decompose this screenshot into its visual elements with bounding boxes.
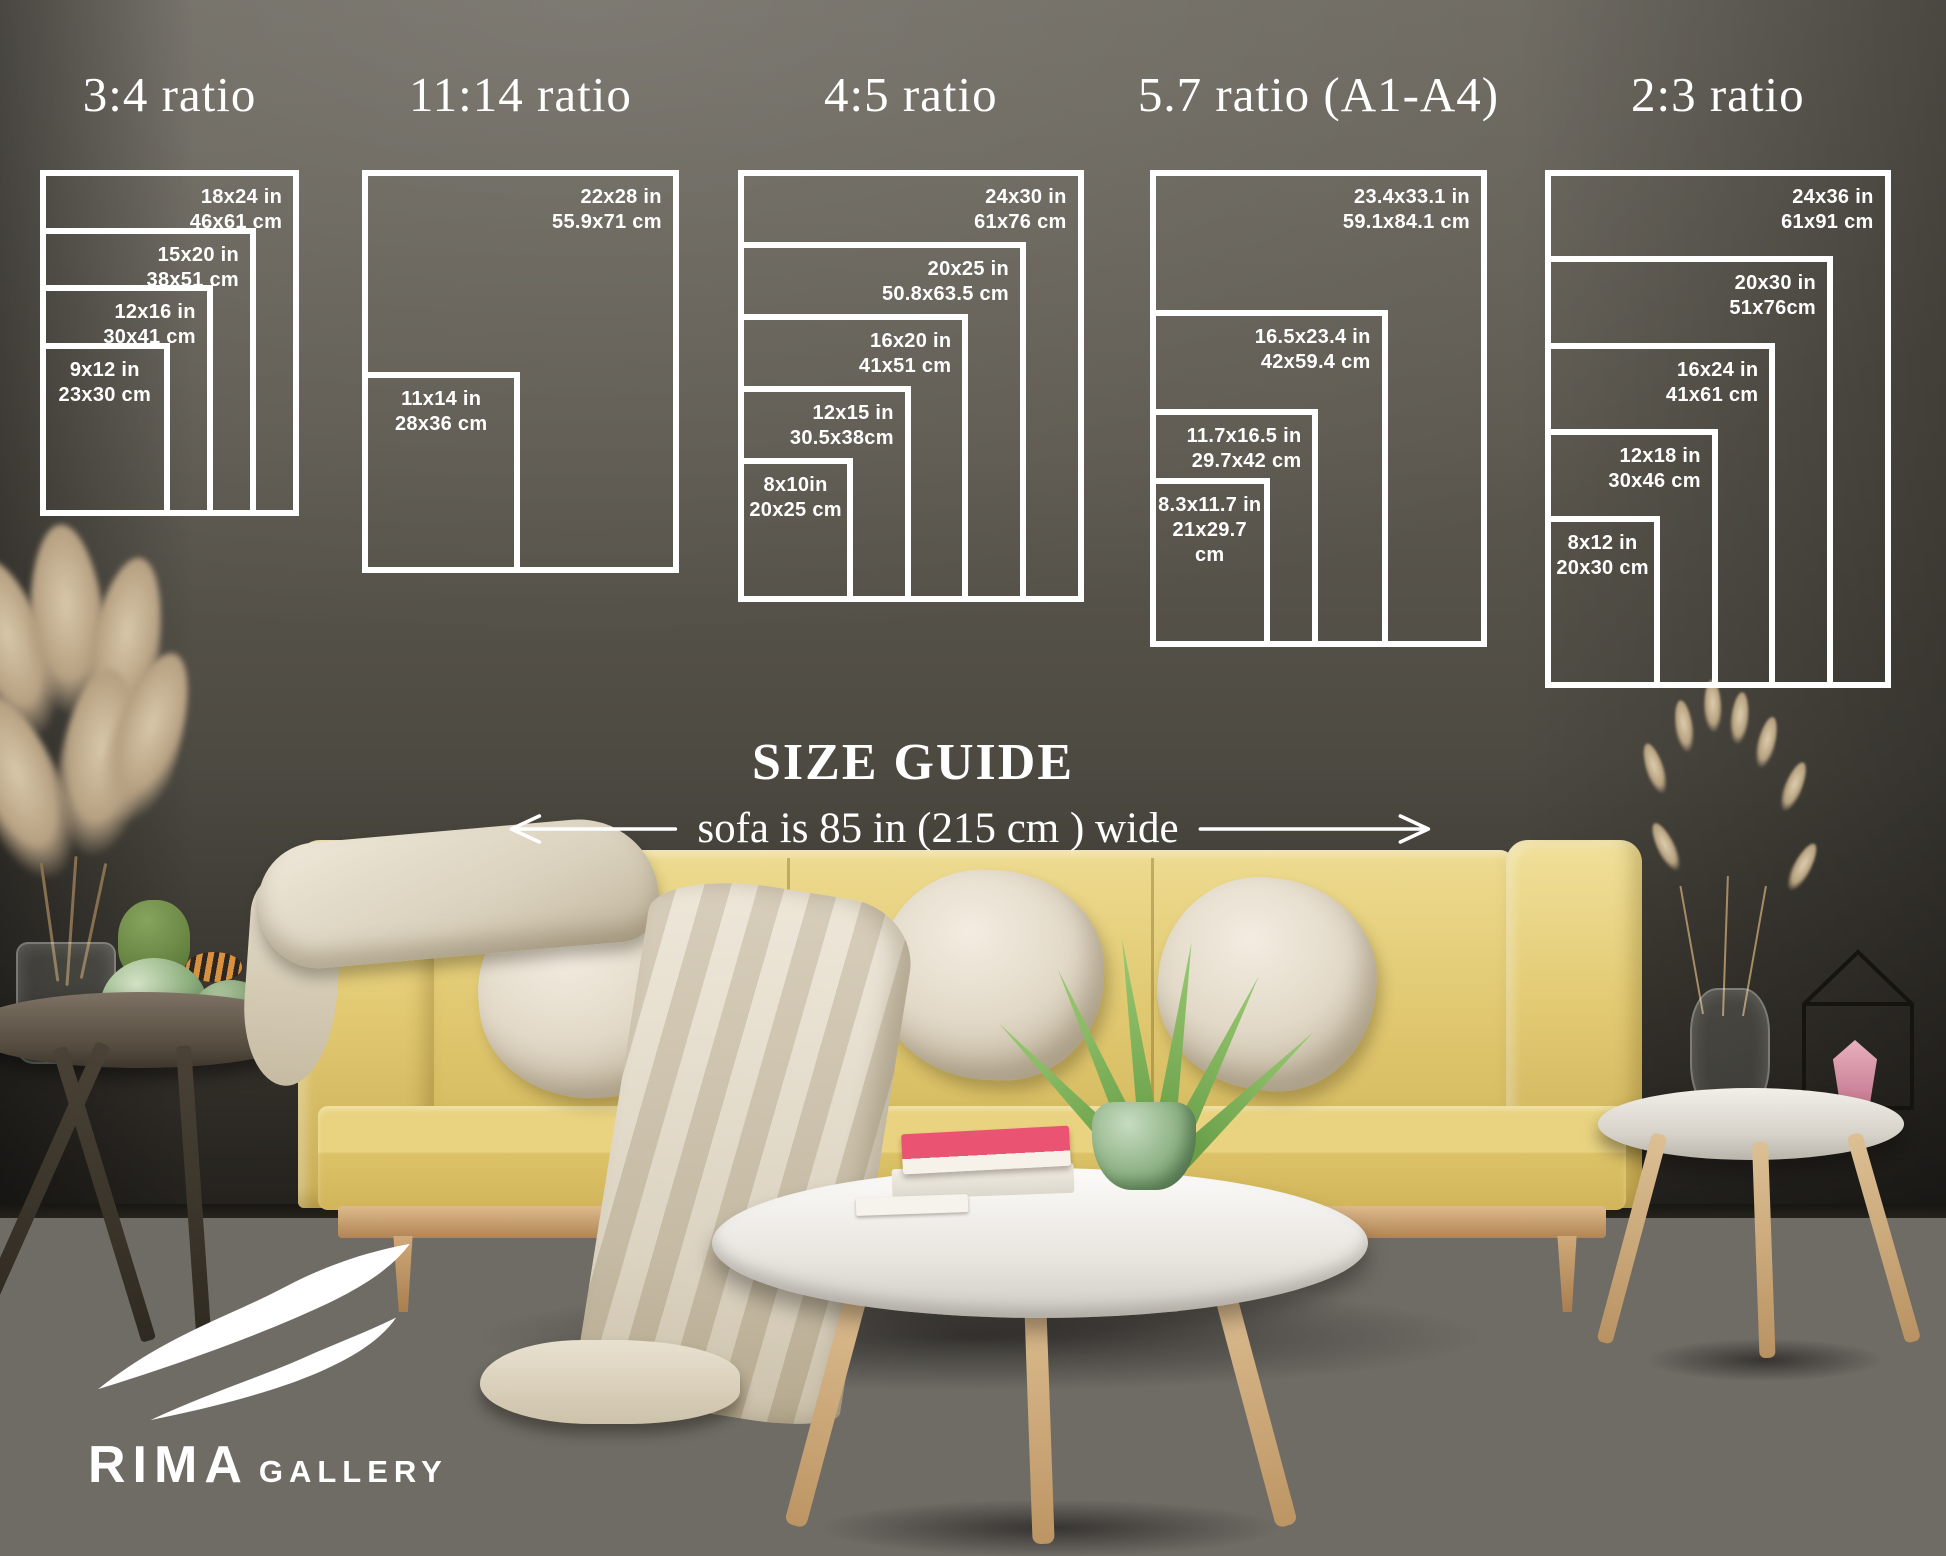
- plant-pot: [1092, 1102, 1196, 1190]
- size-label: 16.5x23.4 in42x59.4 cm: [1255, 325, 1371, 375]
- size-cm: 23x30 cm: [48, 383, 162, 408]
- size-cm: 42x59.4 cm: [1255, 350, 1371, 375]
- sofa-width-text: sofa is 85 in (215 cm ) wide: [697, 804, 1178, 853]
- size-label: 16x24 in41x61 cm: [1666, 358, 1758, 408]
- size-inches: 20x30 in: [1729, 271, 1816, 296]
- size-cm: 50.8x63.5 cm: [882, 282, 1009, 307]
- size-inches: 16x24 in: [1666, 358, 1758, 383]
- size-inches: 22x28 in: [552, 185, 662, 210]
- size-cm: 41x61 cm: [1666, 383, 1758, 408]
- logo-brand-text: RIMA: [88, 1435, 249, 1495]
- size-label: 22x28 in55.9x71 cm: [552, 185, 662, 235]
- size-inches: 24x30 in: [974, 185, 1066, 210]
- size-box: 11x14 in28x36 cm: [362, 372, 520, 574]
- size-label: 11x14 in28x36 cm: [370, 387, 512, 437]
- size-label: 9x12 in23x30 cm: [48, 358, 162, 408]
- size-cm: 51x76cm: [1729, 296, 1816, 321]
- size-label: 12x15 in30.5x38cm: [790, 401, 894, 451]
- size-label: 8x10in20x25 cm: [746, 473, 845, 523]
- ratio-group: 5.7 ratio (A1-A4)23.4x33.1 in59.1x84.1 c…: [1150, 170, 1487, 647]
- size-cm: 55.9x71 cm: [552, 210, 662, 235]
- logo-suffix-text: GALLERY: [259, 1454, 448, 1490]
- size-cm: 30.5x38cm: [790, 426, 894, 451]
- size-inches: 12x16 in: [103, 300, 195, 325]
- size-inches: 16.5x23.4 in: [1255, 325, 1371, 350]
- ratio-group: 3:4 ratio18x24 in46x61 cm15x20 in38x51 c…: [40, 170, 299, 516]
- size-inches: 11.7x16.5 in: [1187, 424, 1302, 449]
- size-inches: 8.3x11.7 in: [1158, 493, 1262, 518]
- size-label: 8x12 in20x30 cm: [1553, 531, 1652, 581]
- size-label: 24x30 in61x76 cm: [974, 185, 1066, 235]
- size-cm: 21x29.7 cm: [1158, 518, 1262, 568]
- size-box: 8.3x11.7 in21x29.7 cm: [1150, 478, 1270, 646]
- left-arrow-icon: [505, 811, 677, 847]
- size-inches: 24x36 in: [1781, 185, 1873, 210]
- size-cm: 30x46 cm: [1608, 469, 1700, 494]
- size-inches: 8x10in: [746, 473, 845, 498]
- size-inches: 8x12 in: [1553, 531, 1652, 556]
- size-label: 20x25 in50.8x63.5 cm: [882, 257, 1009, 307]
- ratio-group-title: 2:3 ratio: [1441, 66, 1946, 123]
- size-label: 12x18 in30x46 cm: [1608, 444, 1700, 494]
- size-inches: 18x24 in: [190, 185, 282, 210]
- size-cm: 61x76 cm: [974, 210, 1066, 235]
- size-inches: 12x18 in: [1608, 444, 1700, 469]
- size-cm: 28x36 cm: [370, 412, 512, 437]
- brand-logo: RIMA GALLERY: [88, 1242, 448, 1495]
- size-cm: 59.1x84.1 cm: [1343, 210, 1470, 235]
- size-cm: 61x91 cm: [1781, 210, 1873, 235]
- size-inches: 9x12 in: [48, 358, 162, 383]
- size-inches: 16x20 in: [859, 329, 951, 354]
- size-label: 20x30 in51x76cm: [1729, 271, 1816, 321]
- size-guide-poster: 3:4 ratio18x24 in46x61 cm15x20 in38x51 c…: [0, 0, 1946, 1556]
- ratio-group: 4:5 ratio24x30 in61x76 cm20x25 in50.8x63…: [738, 170, 1084, 602]
- size-box: 8x12 in20x30 cm: [1545, 516, 1660, 689]
- size-cm: 29.7x42 cm: [1187, 449, 1302, 474]
- size-cm: 41x51 cm: [859, 354, 951, 379]
- size-inches: 23.4x33.1 in: [1343, 185, 1470, 210]
- right-arrow-icon: [1199, 811, 1435, 847]
- sofa-width-note: sofa is 85 in (215 cm ) wide: [505, 804, 1434, 853]
- size-inches: 11x14 in: [370, 387, 512, 412]
- size-inches: 12x15 in: [790, 401, 894, 426]
- size-guide-heading: SIZE GUIDE: [752, 733, 1074, 792]
- logo-swoosh-icon: [88, 1242, 418, 1422]
- size-inches: 20x25 in: [882, 257, 1009, 282]
- size-label: 24x36 in61x91 cm: [1781, 185, 1873, 235]
- ratio-group: 2:3 ratio24x36 in61x91 cm20x30 in51x76cm…: [1545, 170, 1891, 688]
- size-cm: 20x25 cm: [746, 498, 845, 523]
- size-label: 11.7x16.5 in29.7x42 cm: [1187, 424, 1302, 474]
- size-inches: 15x20 in: [147, 243, 239, 268]
- size-label: 23.4x33.1 in59.1x84.1 cm: [1343, 185, 1470, 235]
- blanket-floor-fold: [480, 1340, 740, 1424]
- size-label: 8.3x11.7 in21x29.7 cm: [1158, 493, 1262, 568]
- ratio-group: 11:14 ratio22x28 in55.9x71 cm11x14 in28x…: [362, 170, 679, 573]
- size-cm: 20x30 cm: [1553, 556, 1652, 581]
- size-box: 8x10in20x25 cm: [738, 458, 853, 602]
- size-label: 16x20 in41x51 cm: [859, 329, 951, 379]
- size-box: 9x12 in23x30 cm: [40, 343, 170, 516]
